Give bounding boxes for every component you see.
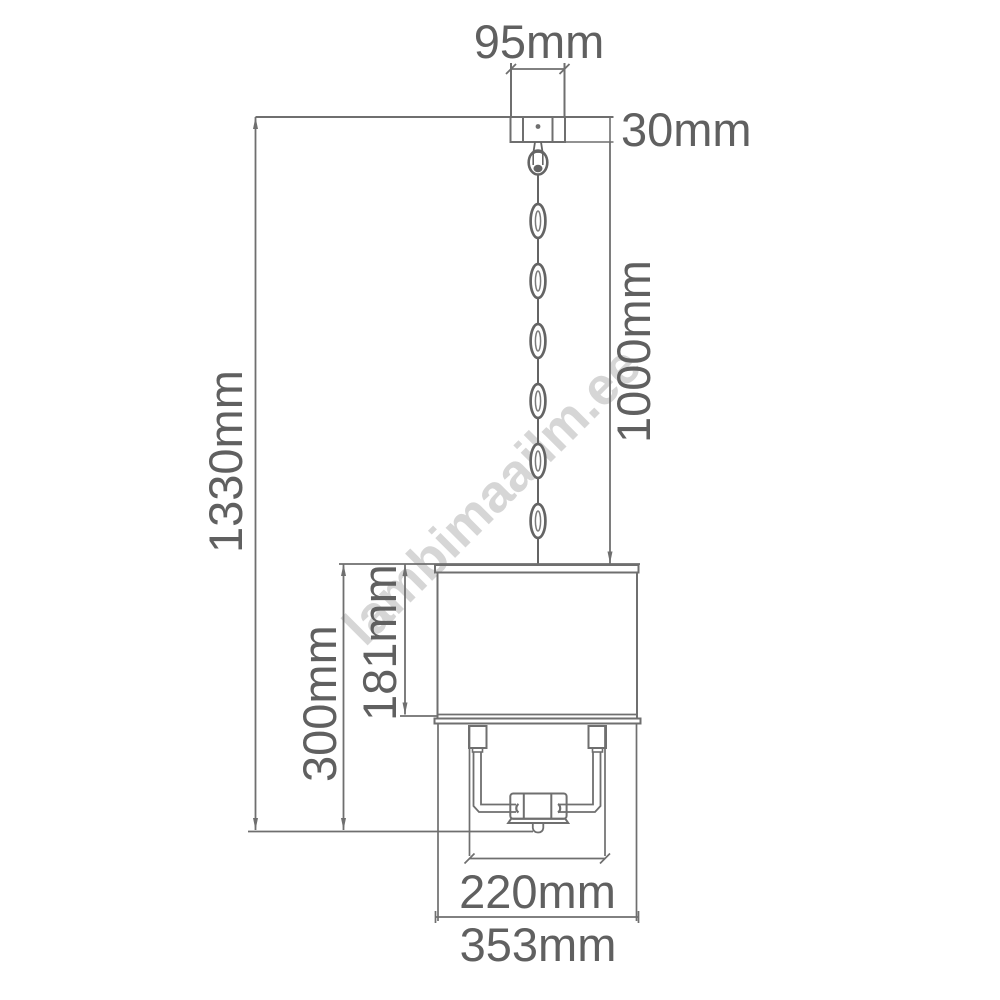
svg-text:300mm: 300mm (293, 625, 346, 782)
svg-text:1330mm: 1330mm (199, 370, 252, 553)
svg-text:1000mm: 1000mm (607, 260, 660, 443)
svg-text:181mm: 181mm (353, 564, 406, 721)
svg-text:95mm: 95mm (474, 15, 605, 68)
svg-text:30mm: 30mm (621, 103, 752, 156)
svg-text:220mm: 220mm (459, 865, 616, 918)
svg-text:353mm: 353mm (460, 918, 617, 971)
